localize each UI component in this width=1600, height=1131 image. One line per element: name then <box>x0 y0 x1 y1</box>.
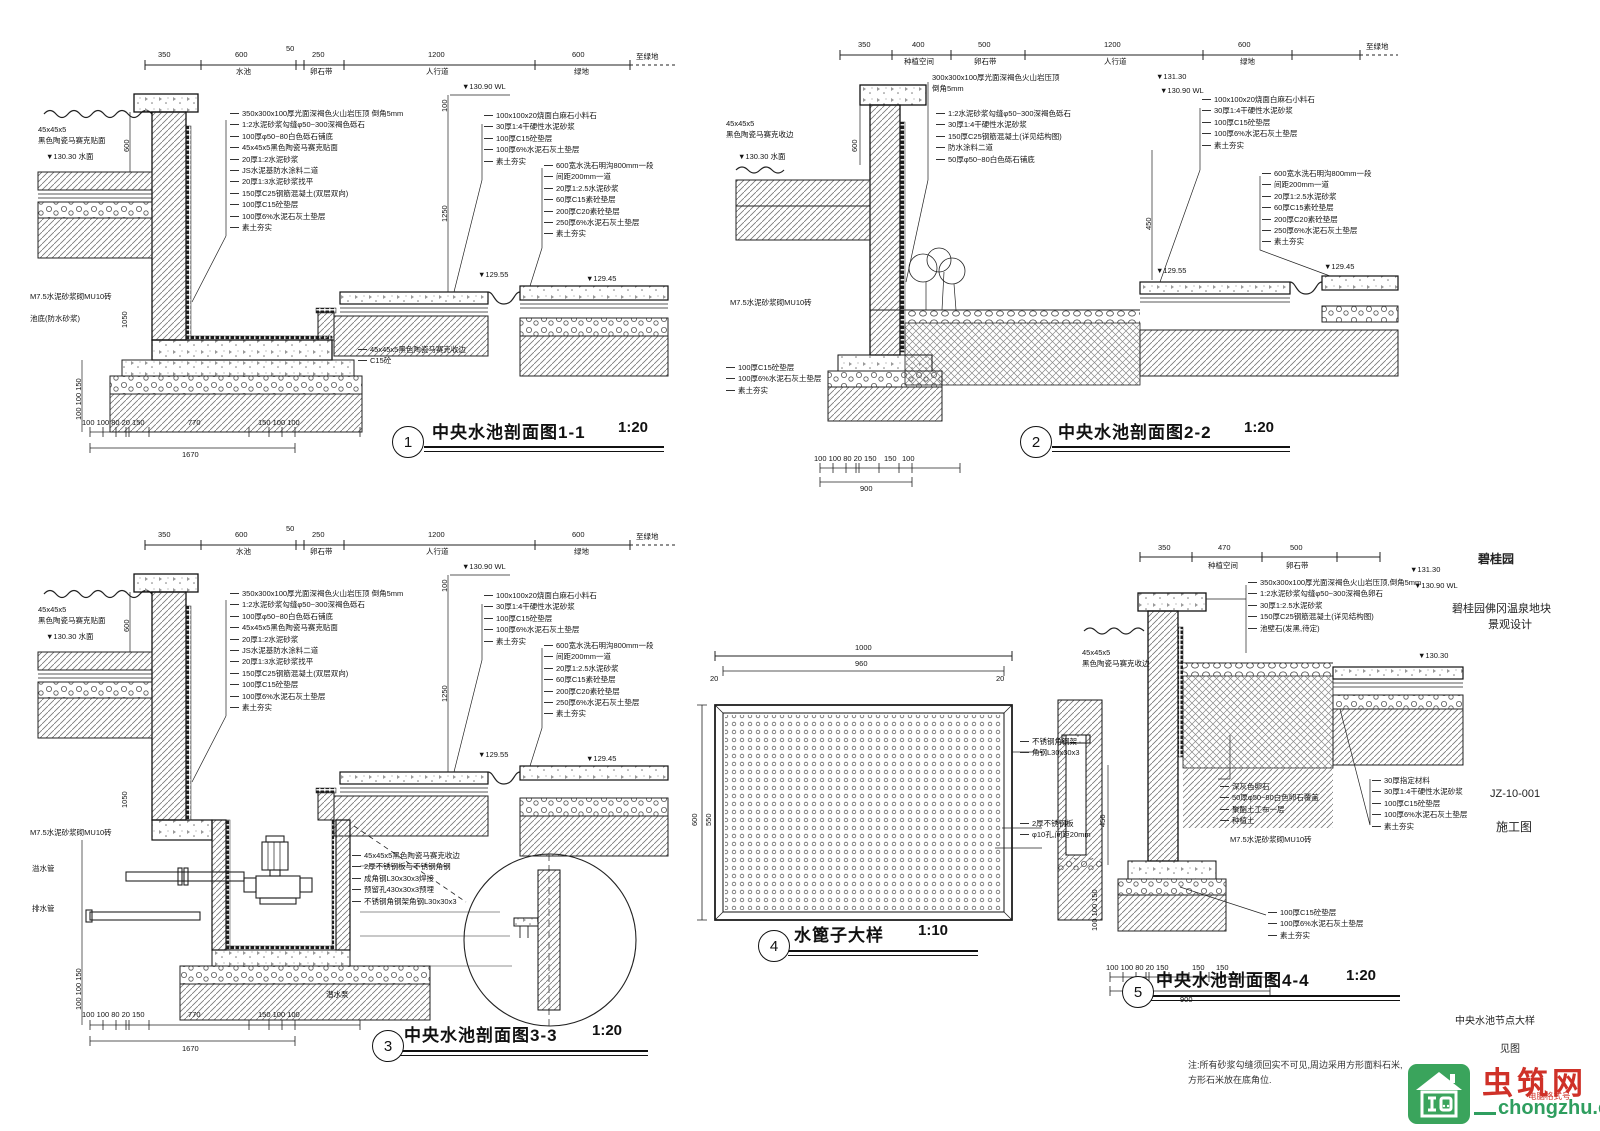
note-line: 素土夯实 <box>726 385 821 396</box>
segment-label: 人行道 <box>426 547 449 557</box>
note-line: 素土夯实 <box>544 228 654 239</box>
note-line: 素土夯实 <box>1268 930 1363 941</box>
note-line: 素土夯实 <box>230 222 403 233</box>
vert-dim: 600 <box>690 813 700 826</box>
note-line: 排水管 <box>32 904 55 914</box>
note-line: 20厚1:3水泥砂浆找平 <box>230 656 403 667</box>
note-line: 间距200mm一道 <box>544 651 654 662</box>
house-icon <box>1408 1064 1470 1124</box>
note-line: 100x100x20烧面白麻石小料石 <box>484 590 597 601</box>
title-underline <box>1052 446 1290 452</box>
note-line: 100厚6%水泥石灰土垫层 <box>1202 128 1315 139</box>
note-line: 100厚6%水泥石灰土垫层 <box>484 624 597 635</box>
dim-row: 150 100 100 <box>258 1010 300 1020</box>
dim-row: 150 100 100 <box>258 418 300 428</box>
vert-dim: 1050 <box>120 791 130 808</box>
vert-dim: 600 <box>122 619 132 632</box>
detail-scale: 1:20 <box>618 419 648 436</box>
vert-dim: 100 100 150 <box>74 378 84 420</box>
document-type: 施工图 <box>1496 818 1532 835</box>
detail-number-badge: 3 <box>372 1030 404 1062</box>
note-line: 100x100x20烧面白麻石小料石 <box>1202 94 1315 105</box>
detail-title: 中央水池剖面图4-4 <box>1156 966 1310 991</box>
note-line: 2厚不锈钢板与不锈钢角钢 <box>352 861 460 872</box>
note-line: 黑色陶瓷马赛克收边 <box>726 129 794 140</box>
sheet-reference: 见图 <box>1500 1040 1520 1055</box>
dim-label: 20 <box>710 674 718 684</box>
vert-dim: 1250 <box>440 685 450 702</box>
elevation-label: ▼130.30 水面 <box>738 152 785 162</box>
notes-center: 350x300x100厚光面深褐色火山岩压顶 倒角5mm1:2水泥砂浆勾缝φ50… <box>230 588 403 713</box>
note-line: 100厚C15砼垫层 <box>726 362 821 373</box>
note-line: 100厚6%水泥石灰土垫层 <box>230 691 403 702</box>
notes-left: 45x45x5黑色陶瓷马赛克收边 <box>726 118 794 141</box>
detail-title: 中央水池剖面图3-3 <box>404 1021 558 1046</box>
note-line: C15砼 <box>358 355 466 366</box>
note-line: 预留孔430x30x3预埋 <box>352 884 460 895</box>
note-line: 100厚C15砼垫层 <box>1202 117 1315 128</box>
notes-top: 300x300x100厚光面深褐色火山岩压顶倒角5mm <box>932 72 1060 95</box>
note-line: 150厚C25钢筋混凝土(双层双向) <box>230 188 403 199</box>
note-line: 30厚指定材料 <box>1372 775 1467 786</box>
note-line: 200厚C20素砼垫层 <box>1262 214 1372 225</box>
notes-base: 100厚C15砼垫层100厚6%水泥石灰土垫层素土夯实 <box>1268 907 1363 941</box>
notes-top: 350x300x100厚光面深褐色火山岩压顶,倒角5mm1:2水泥砂浆勾缝φ50… <box>1248 577 1421 634</box>
dim-tail-label: 至绿地 <box>636 532 659 542</box>
note-line: 角钢L30x30x3 <box>1020 747 1080 758</box>
note-line: 30厚1:2.5水泥砂浆 <box>1248 600 1421 611</box>
note-line: 素土夯实 <box>1262 236 1372 247</box>
dim-label: 350 <box>1158 543 1171 553</box>
elevation-label: ▼130.30 <box>1418 651 1448 661</box>
note-line: 100厚φ50~80白色砾石铺底 <box>230 131 403 142</box>
note-line: 防水涂料二道 <box>936 142 1071 153</box>
vert-dim: 100 100 150 <box>1090 889 1100 931</box>
dim-label: 1000 <box>855 643 872 653</box>
detail-scale: 1:20 <box>1346 967 1376 984</box>
note-line: 30厚1:4干硬性水泥砂浆 <box>1372 786 1467 797</box>
segment-label: 水池 <box>236 67 251 77</box>
dim-total: 1670 <box>182 1044 199 1054</box>
note-line: JS水泥基防水涂料二道 <box>230 165 403 176</box>
note-line: 30厚1:4干硬性水泥砂浆 <box>1202 105 1315 116</box>
note-line: 素土夯实 <box>544 708 654 719</box>
notes-left: 45x45x5黑色陶瓷马赛克贴面 <box>38 124 106 147</box>
note-line: 100厚6%水泥石灰土垫层 <box>230 211 403 222</box>
elevation-label: ▼129.45 <box>586 274 616 284</box>
note-line: 20厚1:2水泥砂浆 <box>230 154 403 165</box>
detail-scale: 1:10 <box>918 922 948 939</box>
detail-title: 中央水池剖面图1-1 <box>432 418 586 443</box>
note-line: 250厚6%水泥石灰土垫层 <box>1262 225 1372 236</box>
note-line: 250厚6%水泥石灰土垫层 <box>544 697 654 708</box>
note-line: 间距200mm一道 <box>544 171 654 182</box>
title-underline <box>424 446 664 452</box>
dim-total: 900 <box>860 484 873 494</box>
notes-right-sub: 600宽水洗石明沟800mm一段间距200mm一道20厚1:2.5水泥砂浆60厚… <box>544 160 654 240</box>
note-line: 100厚φ50~80白色砾石铺底 <box>230 611 403 622</box>
note-line: 20厚1:2.5水泥砂浆 <box>544 183 654 194</box>
note-line: 60厚C15素砼垫层 <box>544 194 654 205</box>
note-line: 素土夯实 <box>1202 140 1315 151</box>
segment-label: 绿地 <box>574 67 589 77</box>
segment-label: 种植空间 <box>904 57 934 67</box>
dim-row: 100 100 80 20 150 <box>82 1010 145 1020</box>
note-line: 池底(防水砂浆) <box>30 314 80 324</box>
dim-label: 600 <box>572 530 585 540</box>
dim-label: 600 <box>235 530 248 540</box>
note-line: 20厚1:2.5水泥砂浆 <box>544 663 654 674</box>
note-line: 1:2水泥砂浆勾缝φ50~300深褐色砾石 <box>230 119 403 130</box>
vert-dim: 100 100 150 <box>74 968 84 1010</box>
notes-left: 45x45x5黑色陶瓷马赛克收边 <box>1082 647 1150 670</box>
dim-label: 1200 <box>428 530 445 540</box>
elevation-label: ▼129.55 <box>478 750 508 760</box>
note-line: 60厚C15素砼垫层 <box>1262 202 1372 213</box>
dim-label: 600 <box>1238 40 1251 50</box>
title-underline <box>400 1050 648 1056</box>
pump-symbol <box>244 836 312 904</box>
dim-label: 470 <box>1218 543 1231 553</box>
water-line <box>736 167 784 173</box>
note-line: 100厚C15砼垫层 <box>230 679 403 690</box>
dim-row: 770 <box>188 418 201 428</box>
note-line: 200厚C20素砼垫层 <box>544 206 654 217</box>
segment-label: 种植空间 <box>1208 561 1238 571</box>
drawing-number: JZ-10-001 <box>1490 788 1540 800</box>
dim-label: 250 <box>312 530 325 540</box>
detail-title: 中央水池剖面图2-2 <box>1058 418 1212 443</box>
dim-label: 50 <box>286 524 294 534</box>
dim-row: 100 <box>902 454 915 464</box>
note-line: 倒角5mm <box>932 83 1060 94</box>
general-note-line2: 方形石米放在底角位. <box>1188 1073 1403 1088</box>
note-line: 黑色陶瓷马赛克贴面 <box>38 615 106 626</box>
notes-center: 350x300x100厚光面深褐色火山岩压顶 倒角5mm1:2水泥砂浆勾缝φ50… <box>230 108 403 233</box>
note-line: 不锈钢角钢架角钢L30x30x3 <box>352 896 460 907</box>
note-line: 350x300x100厚光面深褐色火山岩压顶 倒角5mm <box>230 108 403 119</box>
note-line: M7.5水泥砂浆砌MU10砖 <box>30 292 112 302</box>
segment-label: 绿地 <box>574 547 589 557</box>
note-line: 1:2水泥砂浆勾缝φ50~300深褐色砾石 <box>936 108 1071 119</box>
segment-label: 卵石带 <box>310 67 333 77</box>
vert-dim: 450 <box>1098 814 1108 827</box>
note-line: M7.5水泥砂浆砌MU10砖 <box>730 298 812 308</box>
note-line: 45x45x5黑色陶瓷马赛克贴面 <box>230 142 403 153</box>
note-line: 45x45x5黑色陶瓷马赛克贴面 <box>230 622 403 633</box>
dim-label: 600 <box>572 50 585 60</box>
note-line: 间距200mm一道 <box>1262 179 1372 190</box>
vert-dim: 600 <box>850 139 860 152</box>
note-line: 100厚6%水泥石灰土垫层 <box>484 144 597 155</box>
segment-label: 卵石带 <box>310 547 333 557</box>
note-line: 池壁石(发黑,待定) <box>1248 623 1421 634</box>
note-line: 100厚C15砼垫层 <box>484 613 597 624</box>
detail-scale: 1:20 <box>1244 419 1274 436</box>
dim-tail-label: 至绿地 <box>1366 42 1389 52</box>
note-line: 350x300x100厚光面深褐色火山岩压顶,倒角5mm <box>1248 577 1421 588</box>
notes-detail: 45x45x5黑色陶瓷马赛克收边2厚不锈钢板与不锈钢角钢成角钢L30x30x3焊… <box>352 850 460 907</box>
note-line: 潜水泵 <box>326 990 349 1000</box>
notes-right-top: 100x100x20烧面白麻石小料石30厚1:4干硬性水泥砂浆100厚C15砼垫… <box>484 110 597 167</box>
elevation-label: ▼130.90 WL <box>462 82 506 92</box>
dim-label: 20 <box>996 674 1004 684</box>
note-line: 黑色陶瓷马赛克贴面 <box>38 135 106 146</box>
note-line: 150厚C25钢筋混凝土(详见结构图) <box>936 131 1071 142</box>
notes-left: 45x45x5黑色陶瓷马赛克贴面 <box>38 604 106 627</box>
note-line: 50厚φ50~80白色卵石覆盖 <box>1220 792 1319 803</box>
dim-label: 250 <box>312 50 325 60</box>
note-line: 溢水管 <box>32 864 55 874</box>
elevation-label: ▼129.55 <box>478 270 508 280</box>
vert-dim: 1250 <box>440 205 450 222</box>
detail-1-section: 350 600 50 250 1200 600 水池 卵石带 人行道 绿地 至绿… <box>30 40 690 510</box>
watermark-dash <box>1474 1112 1496 1115</box>
elevation-label: ▼130.90 WL <box>1160 86 1204 96</box>
detail-title: 水篦子大样 <box>794 921 884 946</box>
dim-label: 350 <box>858 40 871 50</box>
notes-frame: 不锈钢角钢架角钢L30x30x3 <box>1020 736 1080 759</box>
watermark-site-url: chongzhu.cn <box>1498 1097 1600 1120</box>
elevation-label: ▼129.45 <box>1324 262 1354 272</box>
segment-label: 卵石带 <box>1286 561 1309 571</box>
note-line: 聚酯土工布一层 <box>1220 804 1319 815</box>
elevation-label: ▼129.45 <box>586 754 616 764</box>
segment-label: 绿地 <box>1240 57 1255 67</box>
dim-total: 1670 <box>182 450 199 460</box>
note-line: 素土夯实 <box>230 702 403 713</box>
note-line: 150厚C25钢筋混凝土(双层双向) <box>230 668 403 679</box>
detail-4-drawing <box>690 640 1110 970</box>
segment-label: 卵石带 <box>974 57 997 67</box>
note-line: 30厚1:4干硬性水泥砂浆 <box>936 119 1071 130</box>
elevation-label: ▼129.55 <box>1156 266 1186 276</box>
note-line: 350x300x100厚光面深褐色火山岩压顶 倒角5mm <box>230 588 403 599</box>
elevation-label: ▼130.90 WL <box>1414 581 1458 591</box>
notes-right-sub: 600宽水洗石明沟800mm一段间距200mm一道20厚1:2.5水泥砂浆60厚… <box>1262 168 1372 248</box>
note-line: 45x45x5 <box>38 604 106 615</box>
note-line: 素土夯实 <box>1372 821 1467 832</box>
note-line: 60厚C15素砼垫层 <box>544 674 654 685</box>
dim-label: 1200 <box>1104 40 1121 50</box>
note-line: M7.5水泥砂浆砌MU10砖 <box>1230 835 1312 845</box>
detail-number-badge: 2 <box>1020 426 1052 458</box>
title-underline <box>788 950 978 956</box>
note-line: 50厚φ50~80白色砾石铺底 <box>936 154 1071 165</box>
project-name-line2: 景观设计 <box>1488 616 1532 632</box>
elevation-label: ▼130.30 水面 <box>46 152 93 162</box>
detail-number-badge: 5 <box>1122 976 1154 1008</box>
dim-label: 350 <box>158 530 171 540</box>
vert-dim: 100 <box>440 579 450 592</box>
detail-scale: 1:20 <box>592 1022 622 1039</box>
note-line: 100厚6%水泥石灰土垫层 <box>1268 918 1363 929</box>
brand-name: 碧桂园 <box>1478 550 1514 567</box>
dim-tail-label: 至绿地 <box>636 52 659 62</box>
dim-label: 50 <box>286 44 294 54</box>
note-line: 100厚C15砼垫层 <box>1268 907 1363 918</box>
drawing-sheet: 350 600 50 250 1200 600 水池 卵石带 人行道 绿地 至绿… <box>0 0 1600 1131</box>
detail-number-badge: 1 <box>392 426 424 458</box>
note-line: 600宽水洗石明沟800mm一段 <box>544 160 654 171</box>
note-line: 600宽水洗石明沟800mm一段 <box>544 640 654 651</box>
notes-right-top: 100x100x20烧面白麻石小料石30厚1:4干硬性水泥砂浆100厚C15砼垫… <box>484 590 597 647</box>
segment-label: 人行道 <box>1104 57 1127 67</box>
note-line: M7.5水泥砂浆砌MU10砖 <box>30 828 112 838</box>
vert-dim: 450 <box>1144 217 1154 230</box>
note-line: 100厚C15砼垫层 <box>230 199 403 210</box>
vert-dim: 550 <box>704 813 714 826</box>
dim-label: 350 <box>158 50 171 60</box>
segment-label: 人行道 <box>426 67 449 77</box>
notes-edge: 45x45x5黑色陶瓷马赛克收边C15砼 <box>358 344 466 367</box>
note-line: 45x45x5 <box>1082 647 1150 658</box>
note-line: 250厚6%水泥石灰土垫层 <box>544 217 654 228</box>
notes-right: 30厚指定材料30厚1:4干硬性水泥砂浆100厚C15砼垫层100厚6%水泥石灰… <box>1372 775 1467 832</box>
dim-label: 1200 <box>428 50 445 60</box>
vert-dim: 1050 <box>120 311 130 328</box>
note-line: 种植土 <box>1220 815 1319 826</box>
detail-5-section: 350 470 500 种植空间 卵石带 350x300x100厚光面深褐色火山… <box>1080 535 1510 1015</box>
note-line: 45x45x5 <box>726 118 794 129</box>
note-line: 1:2水泥砂浆勾缝φ50~300深褐色卵石 <box>1248 588 1421 599</box>
water-line <box>1084 628 1144 634</box>
note-line: 600宽水洗石明沟800mm一段 <box>1262 168 1372 179</box>
dim-row: 100 100 80 20 150 <box>814 454 877 464</box>
notes-base: 100厚C15砼垫层100厚6%水泥石灰土垫层素土夯实 <box>726 362 821 396</box>
dim-label: 960 <box>855 659 868 669</box>
notes-right-sub: 600宽水洗石明沟800mm一段间距200mm一道20厚1:2.5水泥砂浆60厚… <box>544 640 654 720</box>
notes-right-top: 100x100x20烧面白麻石小料石30厚1:4干硬性水泥砂浆100厚C15砼垫… <box>1202 94 1315 151</box>
chongzhu-logo-icon <box>1408 1064 1470 1124</box>
note-line: 100厚C15砼垫层 <box>484 133 597 144</box>
general-note: 注:所有砂浆勾缝须回实不可见,周边采用方形面料石米, 方形石米放在底角位. <box>1188 1058 1403 1088</box>
note-line: 45x45x5黑色陶瓷马赛克收边 <box>358 344 466 355</box>
elevation-label: ▼131.30 <box>1156 72 1186 82</box>
dim-label: 500 <box>1290 543 1303 553</box>
note-line: JS水泥基防水涂料二道 <box>230 645 403 656</box>
note-line: 100厚C15砼垫层 <box>1372 798 1467 809</box>
note-line: 100厚6%水泥石灰土垫层 <box>1372 809 1467 820</box>
note-line: 20厚1:2.5水泥砂浆 <box>1262 191 1372 202</box>
note-line: 150厚C25钢筋混凝土(详见结构图) <box>1248 611 1421 622</box>
note-line: 100x100x20烧面白麻石小料石 <box>484 110 597 121</box>
elevation-label: ▼130.30 水面 <box>46 632 93 642</box>
dim-row: 100 100 80 20 150 <box>82 418 145 428</box>
note-line: 100厚6%水泥石灰土垫层 <box>726 373 821 384</box>
note-line: 200厚C20素砼垫层 <box>544 686 654 697</box>
dim-row: 770 <box>188 1010 201 1020</box>
dim-label: 500 <box>978 40 991 50</box>
project-name-line1: 碧桂园佛冈温泉地块 <box>1452 600 1551 616</box>
title-underline <box>1150 995 1400 1001</box>
note-line: 30厚1:4干硬性水泥砂浆 <box>484 601 597 612</box>
shrub-symbol <box>909 254 937 282</box>
dim-row: 150 <box>884 454 897 464</box>
elevation-label: ▼131.30 <box>1410 565 1440 575</box>
note-line: 45x45x5 <box>38 124 106 135</box>
notes-center: 1:2水泥砂浆勾缝φ50~300深褐色砾石30厚1:4干硬性水泥砂浆150厚C2… <box>936 108 1071 165</box>
note-line: 黑色陶瓷马赛克收边 <box>1082 658 1150 669</box>
note-line: 30厚1:4干硬性水泥砂浆 <box>484 121 597 132</box>
notes-mid: 深灰色卵石50厚φ50~80白色卵石覆盖聚酯土工布一层种植土 <box>1220 781 1319 827</box>
vert-dim: 100 <box>440 99 450 112</box>
note-line: 成角钢L30x30x3焊接 <box>352 873 460 884</box>
segment-label: 水池 <box>236 547 251 557</box>
note-line: 深灰色卵石 <box>1220 781 1319 792</box>
elevation-label: ▼130.90 WL <box>462 562 506 572</box>
sheet-name: 中央水池节点大样 <box>1455 1012 1535 1027</box>
detail-3-section: 350 600 50 250 1200 600 水池 卵石带 人行道 绿地 至绿… <box>30 520 690 1080</box>
detail-4-grate: 1000 960 20 20 600 550 不锈钢角钢架角钢L30x30x3 … <box>690 640 1110 970</box>
detail-number-badge: 4 <box>758 930 790 962</box>
note-line: 1:2水泥砂浆勾缝φ50~300深褐色砾石 <box>230 599 403 610</box>
note-line: 45x45x5黑色陶瓷马赛克收边 <box>352 850 460 861</box>
dim-label: 600 <box>235 50 248 60</box>
vert-dim: 600 <box>122 139 132 152</box>
note-line: 20厚1:2水泥砂浆 <box>230 634 403 645</box>
general-note-line1: 注:所有砂浆勾缝须回实不可见,周边采用方形面料石米, <box>1188 1058 1403 1073</box>
note-line: 20厚1:3水泥砂浆找平 <box>230 176 403 187</box>
note-line: 不锈钢角钢架 <box>1020 736 1080 747</box>
note-line: 300x300x100厚光面深褐色火山岩压顶 <box>932 72 1060 83</box>
dim-label: 400 <box>912 40 925 50</box>
